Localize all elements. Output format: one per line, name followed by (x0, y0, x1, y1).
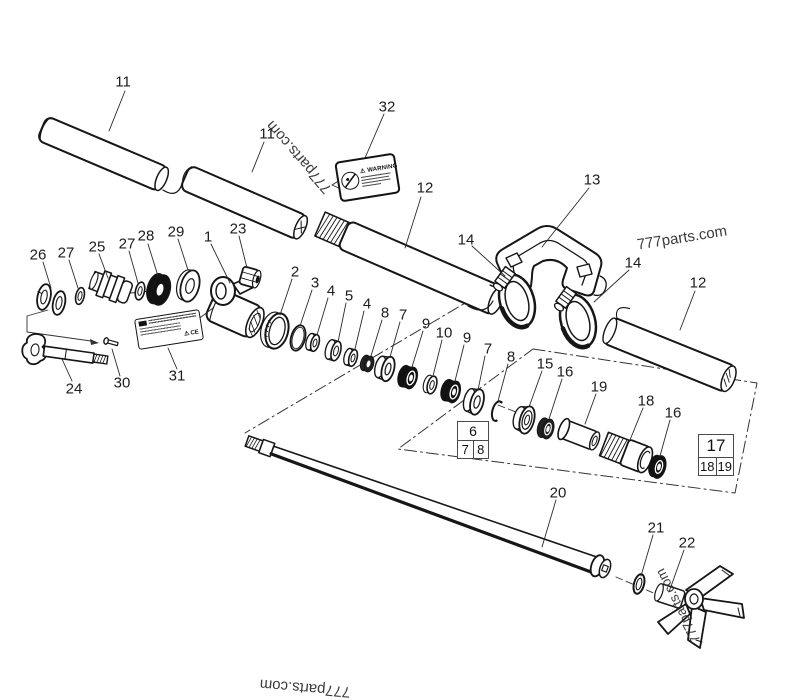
ref-table-17-cell-18: 18 (699, 458, 716, 475)
tube-break-curl-1 (163, 184, 182, 193)
ce-mark: CE (190, 329, 199, 336)
split-ring-27 (74, 287, 86, 305)
cup-7a (372, 354, 397, 383)
ref-table-17: 17 18 19 (698, 434, 734, 476)
sleeve-19 (556, 417, 603, 452)
c-washer-26b (51, 290, 68, 316)
o-ring-3 (288, 324, 308, 353)
warning-triangle-icon: ⚠ (360, 169, 366, 176)
ref-table-17-header: 17 (699, 435, 733, 458)
bushing-4a (304, 332, 321, 352)
ref-table-17-cell-19: 19 (716, 458, 734, 475)
ring-10 (421, 374, 438, 395)
warning-pictogram-icon (340, 170, 361, 191)
ring-27b (134, 281, 147, 300)
ref-table-6-cell-7: 7 (458, 441, 473, 458)
bushing-5 (323, 339, 343, 362)
tube-12-lower (600, 303, 745, 394)
ref-table-17-row: 18 19 (699, 458, 733, 475)
warning-text-block: ⚠ WARNING (359, 163, 395, 188)
ref-table-6-header: 6 (458, 422, 488, 441)
cup-7b (461, 386, 487, 416)
coupler-housing-1 (204, 277, 268, 341)
ref-table-6-row: 7 8 (458, 441, 488, 458)
threaded-coupler-18 (599, 431, 655, 474)
washer-21 (632, 573, 647, 595)
flanged-bushing-15 (510, 403, 537, 435)
stepped-bushing-25 (87, 267, 134, 305)
warning-triangle-icon: ⚠ (184, 330, 190, 338)
washer-29 (173, 267, 203, 304)
bearing-8a (359, 354, 376, 373)
exploded-parts-drawing (0, 0, 800, 683)
locking-pin-30 (103, 337, 118, 347)
collar-16a (535, 417, 556, 440)
bearing-9a (396, 364, 420, 390)
parts-diagram-page: { "canvas": {"width": 800, "height": 683… (0, 0, 800, 683)
bearing-9b (439, 378, 463, 404)
bushing-4b (342, 347, 359, 367)
tube-11-lower (178, 164, 310, 241)
brand-logo-block (138, 320, 147, 326)
tube-11-upper (37, 116, 171, 193)
rubber-grommet-28 (143, 271, 173, 307)
tube-12-upper (314, 210, 508, 316)
knob-bolt-24 (20, 332, 109, 374)
ref-table-6: 6 7 8 (457, 421, 489, 459)
ref-table-6-cell-8: 8 (473, 441, 489, 458)
snap-ring-8b (490, 399, 503, 422)
